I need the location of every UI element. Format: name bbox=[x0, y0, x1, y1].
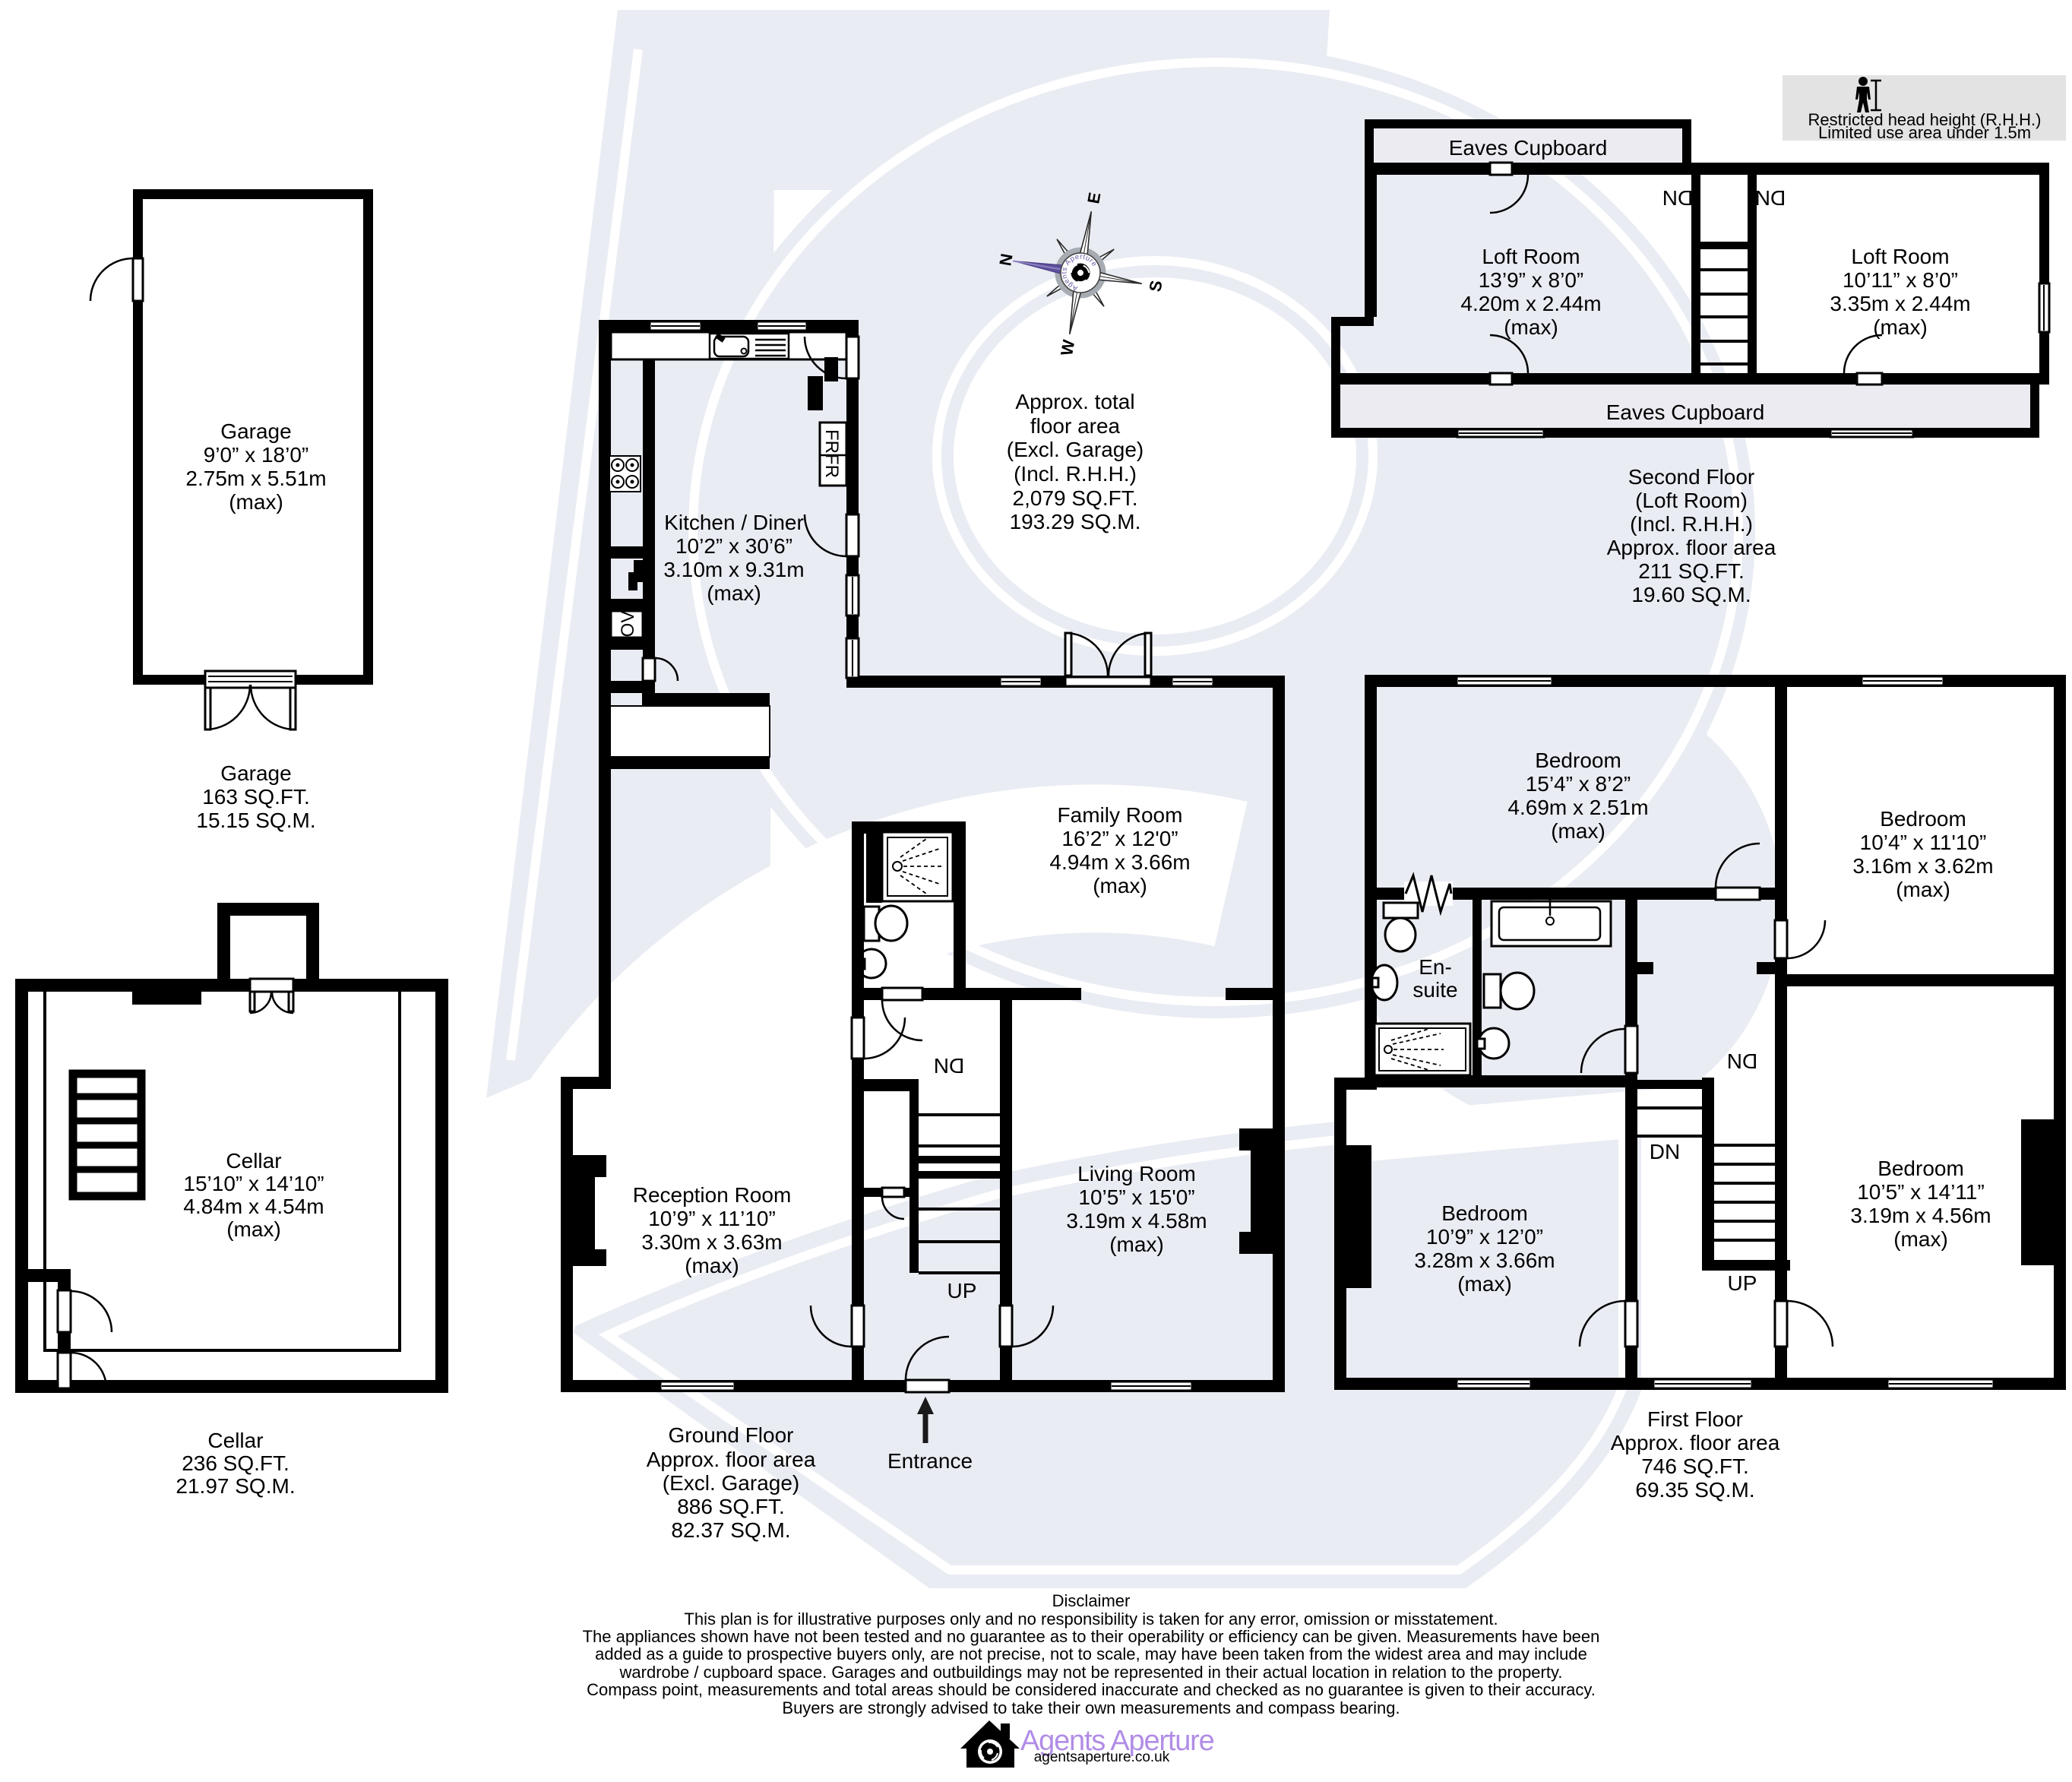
svg-text:added as a guide to prospectiv: added as a guide to prospective buyers o… bbox=[595, 1644, 1587, 1663]
svg-text:(max): (max) bbox=[707, 581, 761, 605]
svg-text:(Excl. Garage): (Excl. Garage) bbox=[663, 1471, 800, 1495]
svg-text:OV: OV bbox=[618, 611, 638, 638]
svg-text:236 SQ.FT.: 236 SQ.FT. bbox=[182, 1451, 289, 1475]
svg-text:Cellar: Cellar bbox=[207, 1429, 263, 1452]
svg-text:UP: UP bbox=[947, 1279, 977, 1302]
svg-text:DN: DN bbox=[1650, 1140, 1680, 1163]
svg-text:886 SQ.FT.: 886 SQ.FT. bbox=[677, 1495, 785, 1518]
svg-text:Eaves Cupboard: Eaves Cupboard bbox=[1606, 400, 1765, 424]
svg-text:2.75m x 5.51m: 2.75m x 5.51m bbox=[185, 467, 326, 490]
svg-text:2,079 SQ.FT.: 2,079 SQ.FT. bbox=[1013, 486, 1138, 510]
svg-text:3.10m x 9.31m: 3.10m x 9.31m bbox=[663, 558, 804, 581]
svg-text:3.30m x 3.63m: 3.30m x 3.63m bbox=[641, 1230, 782, 1254]
svg-text:Reception Room: Reception Room bbox=[633, 1183, 792, 1207]
svg-text:10’5” x 14’11”: 10’5” x 14’11” bbox=[1857, 1180, 1985, 1204]
svg-text:wardrobe / cupboard space. Gar: wardrobe / cupboard space. Garages and o… bbox=[619, 1663, 1563, 1682]
svg-text:163 SQ.FT.: 163 SQ.FT. bbox=[202, 785, 310, 809]
svg-text:21.97 SQ.M.: 21.97 SQ.M. bbox=[176, 1474, 295, 1498]
svg-text:Family Room: Family Room bbox=[1058, 803, 1183, 827]
svg-text:Approx. floor area: Approx. floor area bbox=[1607, 536, 1776, 559]
svg-text:Garage: Garage bbox=[220, 761, 291, 785]
svg-text:(max): (max) bbox=[685, 1254, 739, 1277]
svg-text:Compass point, measurements an: Compass point, measurements and total ar… bbox=[587, 1680, 1596, 1699]
svg-text:(max): (max) bbox=[1896, 878, 1950, 901]
svg-text:19.60 SQ.M.: 19.60 SQ.M. bbox=[1631, 583, 1751, 606]
svg-text:Approx. floor area: Approx. floor area bbox=[647, 1448, 816, 1471]
svg-text:Loft Room: Loft Room bbox=[1851, 245, 1949, 268]
svg-text:First Floor: First Floor bbox=[1647, 1407, 1743, 1431]
svg-text:(Loft Room): (Loft Room) bbox=[1635, 489, 1748, 512]
svg-text:(max): (max) bbox=[1457, 1272, 1512, 1296]
svg-text:13’9” x 8’0”: 13’9” x 8’0” bbox=[1479, 268, 1584, 292]
svg-text:Bedroom: Bedroom bbox=[1877, 1157, 1964, 1180]
svg-text:(Incl. R.H.H.): (Incl. R.H.H.) bbox=[1014, 462, 1137, 486]
svg-text:Kitchen / Diner: Kitchen / Diner bbox=[664, 511, 804, 534]
svg-text:3.16m x 3.62m: 3.16m x 3.62m bbox=[1852, 854, 1993, 878]
svg-text:Disclaimer: Disclaimer bbox=[1052, 1591, 1131, 1610]
svg-text:Entrance: Entrance bbox=[887, 1449, 973, 1473]
svg-text:DN: DN bbox=[934, 1054, 964, 1078]
svg-text:floor area: floor area bbox=[1030, 414, 1121, 438]
svg-text:4.94m x 3.66m: 4.94m x 3.66m bbox=[1049, 850, 1190, 874]
svg-text:Cellar: Cellar bbox=[226, 1149, 281, 1173]
svg-text:(max): (max) bbox=[1109, 1233, 1164, 1256]
svg-text:(max): (max) bbox=[1893, 1227, 1948, 1251]
svg-text:Eaves Cupboard: Eaves Cupboard bbox=[1449, 136, 1608, 160]
svg-text:Second Floor: Second Floor bbox=[1628, 465, 1755, 489]
svg-text:4.69m x 2.51m: 4.69m x 2.51m bbox=[1507, 796, 1648, 819]
svg-text:10’11” x 8’0”: 10’11” x 8’0” bbox=[1843, 268, 1958, 292]
svg-text:82.37 SQ.M.: 82.37 SQ.M. bbox=[671, 1518, 790, 1542]
svg-text:(max): (max) bbox=[226, 1217, 281, 1241]
svg-text:3.19m x 4.56m: 3.19m x 4.56m bbox=[1850, 1204, 1991, 1227]
svg-text:DN: DN bbox=[1662, 186, 1693, 210]
svg-text:Limited use area under 1.5m: Limited use area under 1.5m bbox=[1818, 123, 2031, 142]
svg-text:4.20m x 2.44m: 4.20m x 2.44m bbox=[1460, 292, 1601, 315]
svg-text:3.35m x 2.44m: 3.35m x 2.44m bbox=[1830, 292, 1970, 315]
svg-text:(max): (max) bbox=[1551, 819, 1605, 843]
svg-text:15.15 SQ.M.: 15.15 SQ.M. bbox=[196, 809, 315, 832]
svg-text:(max): (max) bbox=[229, 490, 283, 514]
svg-text:(max): (max) bbox=[1504, 315, 1558, 339]
svg-text:10’9” x 12’0”: 10’9” x 12’0” bbox=[1426, 1225, 1543, 1249]
svg-text:DN: DN bbox=[1727, 1049, 1757, 1073]
svg-text:10’2” x 30’6”: 10’2” x 30’6” bbox=[675, 534, 792, 558]
svg-text:3.19m x 4.58m: 3.19m x 4.58m bbox=[1066, 1209, 1207, 1233]
svg-text:(Excl. Garage): (Excl. Garage) bbox=[1007, 438, 1144, 461]
svg-text:(max): (max) bbox=[1873, 315, 1928, 339]
svg-text:Approx. total: Approx. total bbox=[1015, 390, 1134, 413]
svg-text:Ground Floor: Ground Floor bbox=[669, 1423, 794, 1447]
svg-text:agentsaperture.co.uk: agentsaperture.co.uk bbox=[1034, 1749, 1170, 1765]
svg-text:DN: DN bbox=[1755, 186, 1786, 210]
svg-text:16’2” x 12'0”: 16’2” x 12'0” bbox=[1061, 827, 1178, 850]
svg-text:FRFR: FRFR bbox=[821, 429, 842, 478]
svg-text:10’5” x 15'0”: 10’5” x 15'0” bbox=[1078, 1185, 1194, 1209]
svg-text:(Incl. R.H.H.): (Incl. R.H.H.) bbox=[1630, 512, 1753, 536]
svg-text:211 SQ.FT.: 211 SQ.FT. bbox=[1638, 559, 1745, 583]
svg-text:UP: UP bbox=[1728, 1271, 1757, 1295]
svg-text:Approx. floor area: Approx. floor area bbox=[1611, 1431, 1780, 1454]
svg-text:15’10” x 14’10”: 15’10” x 14’10” bbox=[183, 1172, 324, 1195]
svg-text:9’0” x 18’0”: 9’0” x 18’0” bbox=[204, 443, 309, 467]
svg-text:En-: En- bbox=[1419, 955, 1452, 979]
svg-text:746 SQ.FT.: 746 SQ.FT. bbox=[1641, 1454, 1749, 1478]
svg-text:Bedroom: Bedroom bbox=[1441, 1201, 1528, 1225]
svg-text:Buyers are strongly advised to: Buyers are strongly advised to take thei… bbox=[782, 1698, 1400, 1717]
svg-text:10’9” x 11’10”: 10’9” x 11’10” bbox=[648, 1207, 776, 1230]
svg-text:Living Room: Living Room bbox=[1077, 1162, 1196, 1185]
svg-text:suite: suite bbox=[1412, 978, 1457, 1002]
svg-text:Bedroom: Bedroom bbox=[1535, 749, 1621, 772]
svg-text:Garage: Garage bbox=[220, 419, 291, 443]
svg-text:(max): (max) bbox=[1093, 874, 1147, 897]
svg-text:15’4” x 8’2”: 15’4” x 8’2” bbox=[1526, 772, 1631, 796]
svg-text:3.28m x 3.66m: 3.28m x 3.66m bbox=[1414, 1249, 1555, 1272]
svg-text:4.84m x 4.54m: 4.84m x 4.54m bbox=[183, 1195, 324, 1218]
svg-text:This plan is for illustrative: This plan is for illustrative purposes o… bbox=[684, 1609, 1498, 1628]
svg-text:10’4” x 11'10”: 10’4” x 11'10” bbox=[1860, 831, 1987, 854]
svg-text:193.29 SQ.M.: 193.29 SQ.M. bbox=[1010, 510, 1141, 533]
svg-text:69.35 SQ.M.: 69.35 SQ.M. bbox=[1635, 1478, 1754, 1502]
svg-text:The appliances shown have not: The appliances shown have not been teste… bbox=[583, 1627, 1600, 1646]
svg-text:Loft Room: Loft Room bbox=[1482, 245, 1580, 268]
svg-text:Bedroom: Bedroom bbox=[1880, 807, 1966, 831]
